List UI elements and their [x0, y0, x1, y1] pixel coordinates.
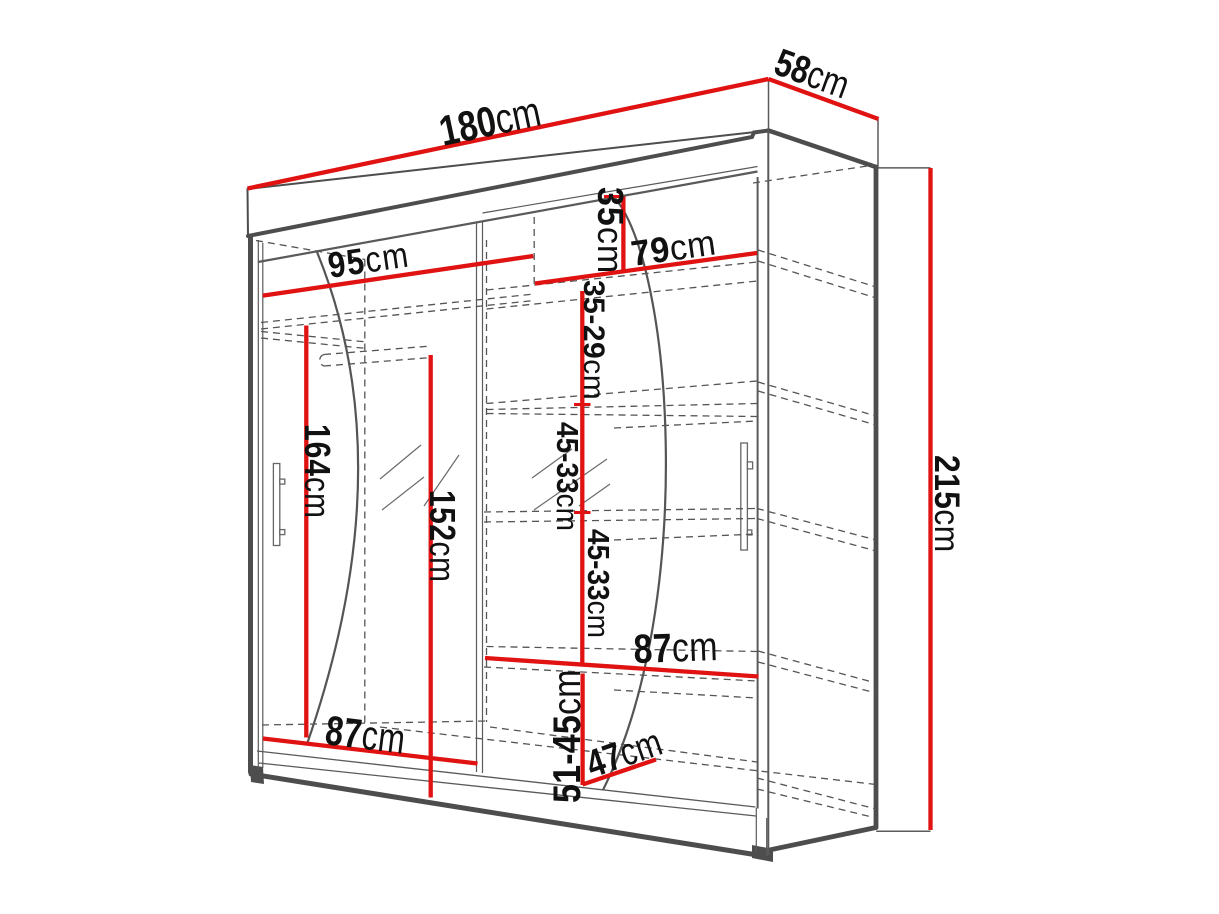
svg-text:164cm: 164cm — [297, 424, 337, 519]
svg-text:35-29cm: 35-29cm — [577, 280, 610, 400]
svg-text:45-33cm: 45-33cm — [550, 422, 583, 531]
svg-text:87cm: 87cm — [633, 623, 719, 672]
svg-text:215cm: 215cm — [927, 455, 966, 553]
svg-text:152cm: 152cm — [422, 490, 462, 583]
svg-text:87cm: 87cm — [323, 706, 408, 763]
svg-text:35cm: 35cm — [590, 187, 630, 274]
svg-text:51-45cm: 51-45cm — [545, 669, 589, 803]
svg-text:45-33cm: 45-33cm — [581, 529, 614, 638]
